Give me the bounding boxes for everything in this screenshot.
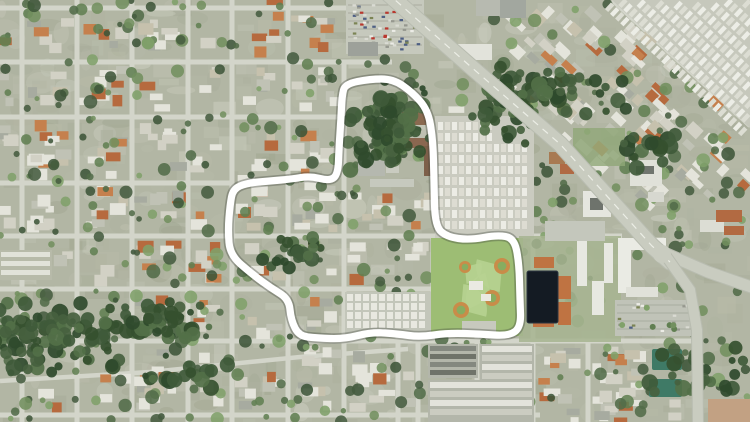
dark-pond (527, 271, 558, 323)
aerial-photo-canvas (0, 0, 750, 422)
townhouse-complex (428, 344, 534, 422)
ballpark (431, 238, 523, 336)
apartment-rows-left (0, 250, 52, 280)
pond-campus (519, 236, 621, 342)
highway-intersection (653, 245, 671, 263)
duplex-rows (345, 292, 431, 334)
aerial-map-screenshot (0, 0, 750, 422)
